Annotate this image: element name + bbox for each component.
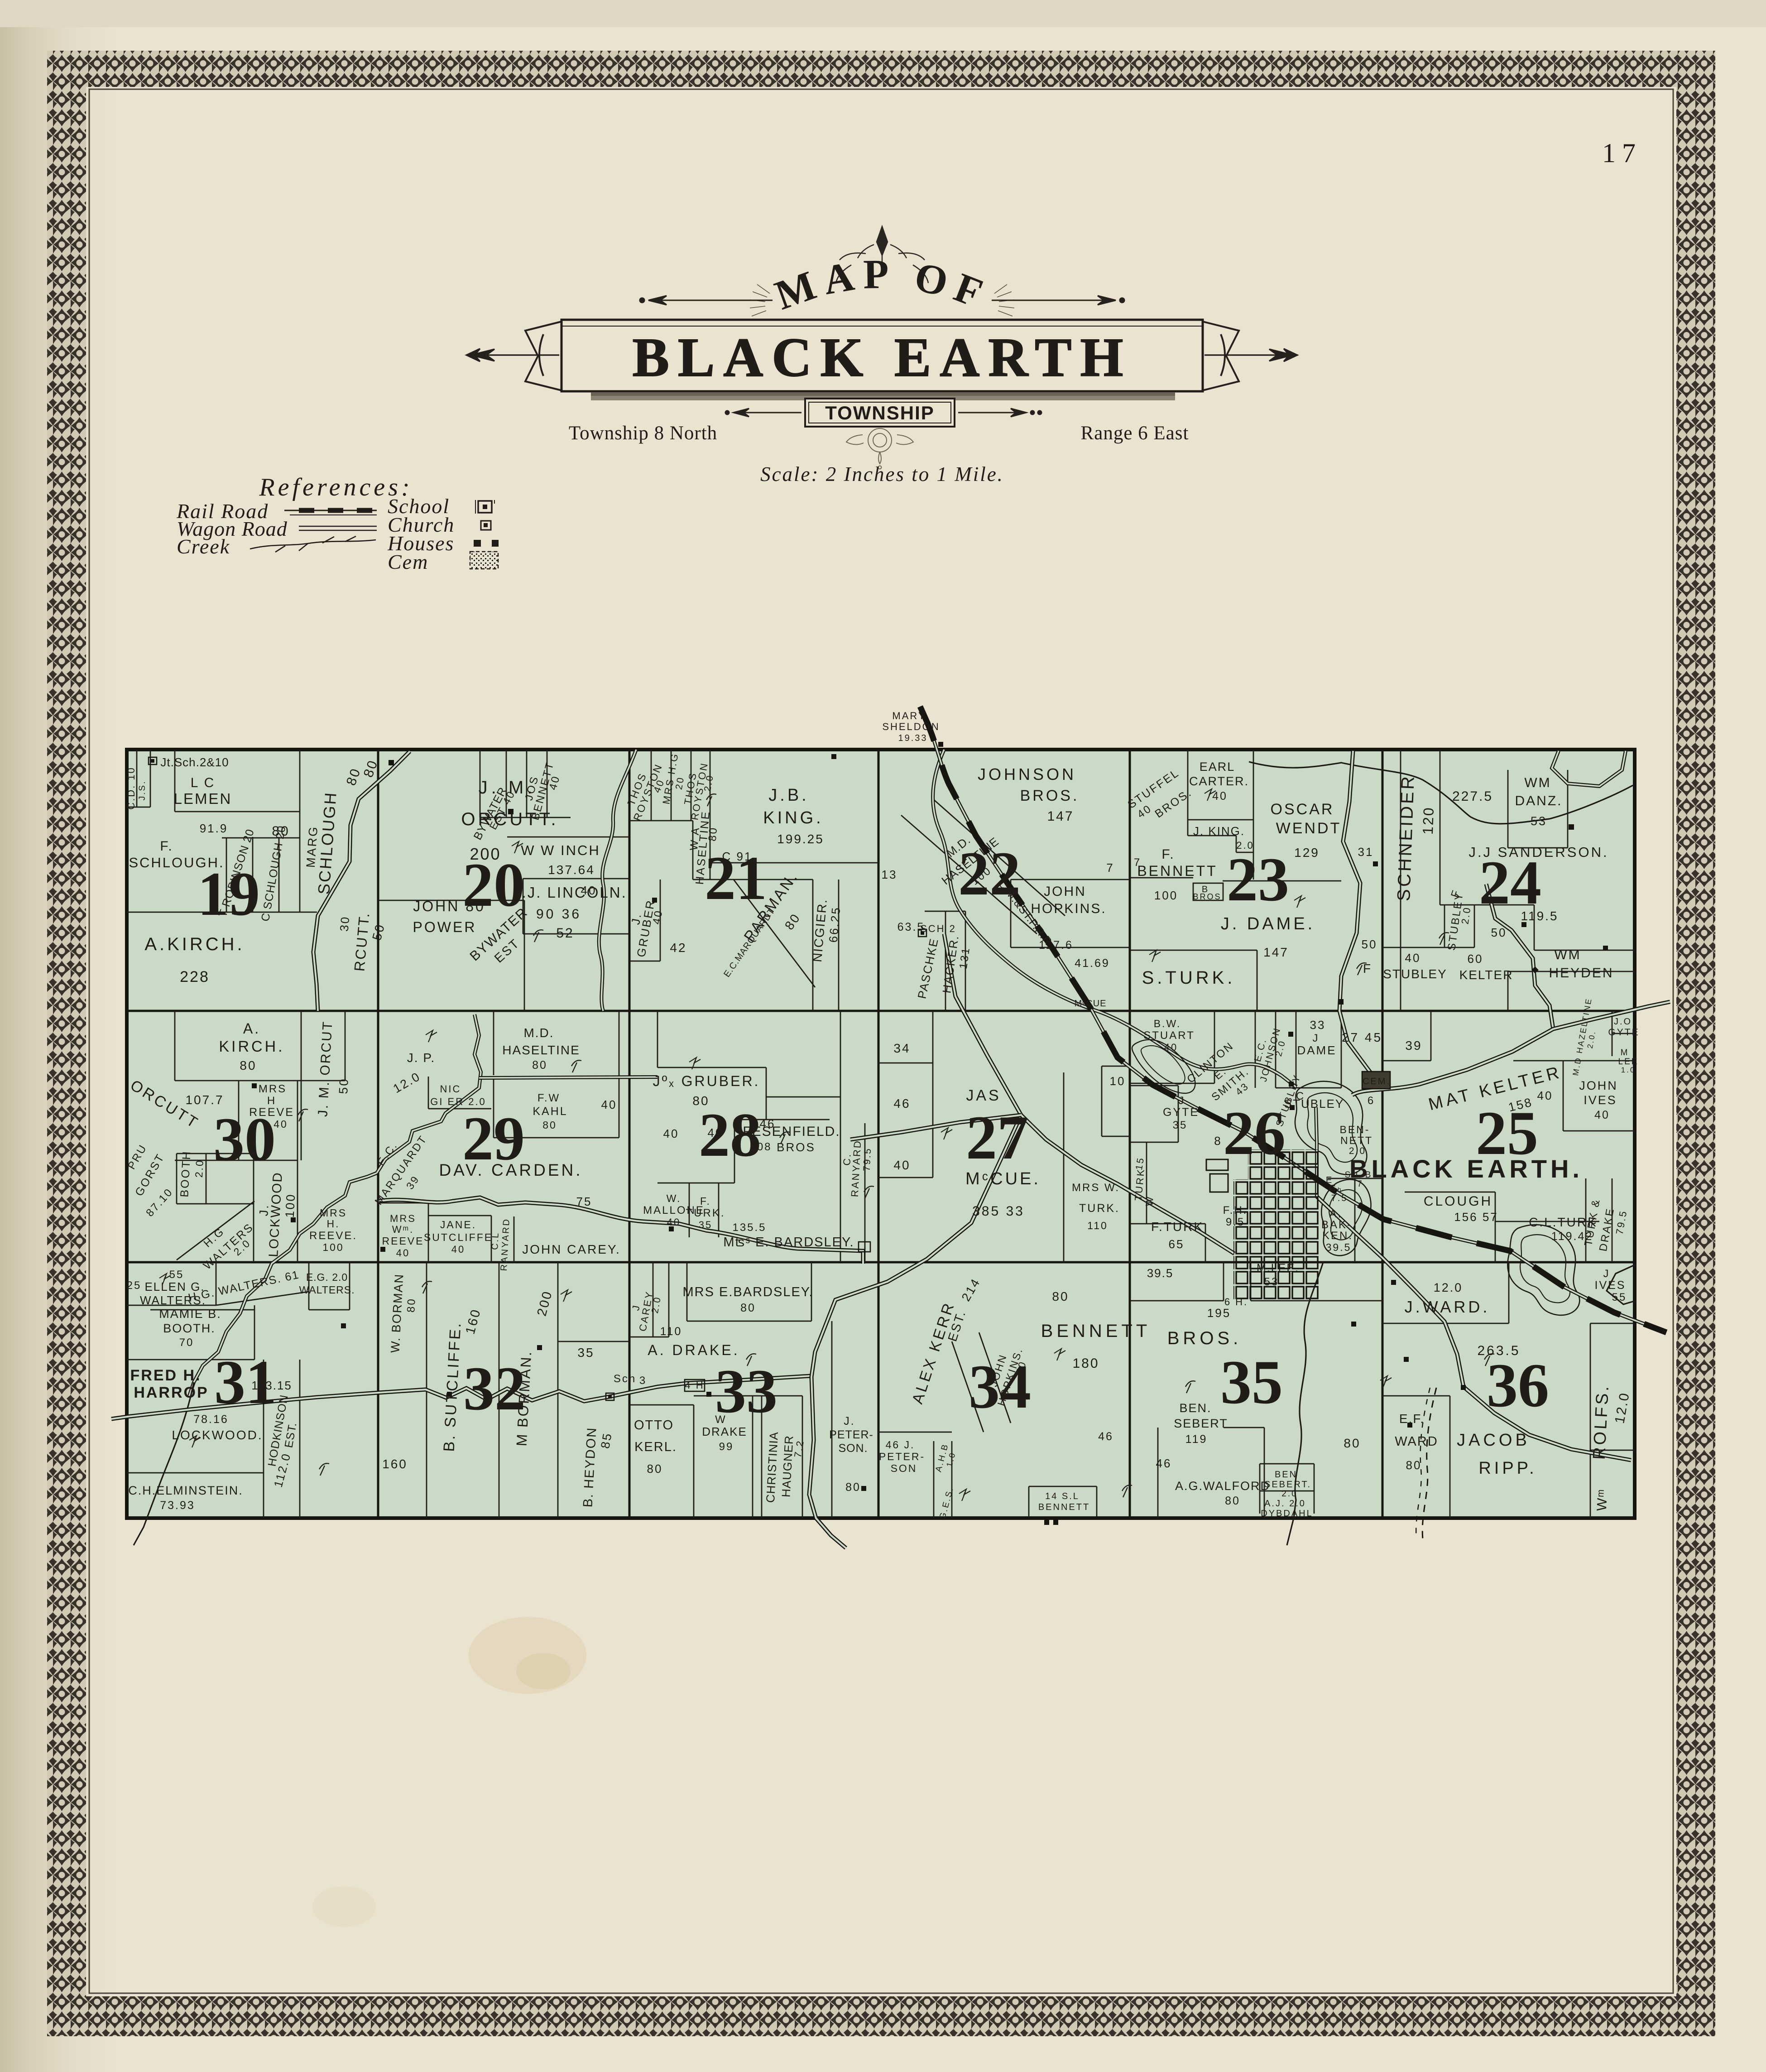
svg-text:35: 35 xyxy=(1220,1347,1283,1417)
svg-text:6 H.: 6 H. xyxy=(1224,1296,1248,1308)
svg-text:SON: SON xyxy=(891,1462,917,1474)
svg-text:40: 40 xyxy=(1594,1109,1610,1121)
svg-text:80: 80 xyxy=(1052,1289,1069,1303)
svg-text:60: 60 xyxy=(1468,952,1483,966)
svg-text:FESENFIELD.: FESENFIELD. xyxy=(743,1124,840,1139)
svg-text:BROS.: BROS. xyxy=(1020,787,1080,804)
svg-text:12.0: 12.0 xyxy=(1434,1281,1463,1294)
svg-text:2.0: 2.0 xyxy=(1281,1489,1297,1499)
svg-text:F.TURK: F.TURK xyxy=(1151,1220,1204,1234)
svg-text:2.0: 2.0 xyxy=(193,1159,206,1178)
svg-text:7: 7 xyxy=(1134,856,1141,869)
svg-text:POWER: POWER xyxy=(413,919,477,935)
svg-text:227.5: 227.5 xyxy=(1452,789,1493,804)
svg-text:SHELDON: SHELDON xyxy=(882,721,940,732)
svg-text:J.WARD.: J.WARD. xyxy=(1405,1298,1490,1316)
svg-text:40: 40 xyxy=(1212,790,1228,803)
svg-text:156 57: 156 57 xyxy=(1454,1210,1498,1224)
svg-text:195: 195 xyxy=(1207,1306,1231,1320)
svg-text:80: 80 xyxy=(740,1302,756,1314)
svg-text:25: 25 xyxy=(127,1279,142,1292)
svg-text:14 S.L: 14 S.L xyxy=(1045,1491,1080,1501)
svg-text:147: 147 xyxy=(1047,809,1074,824)
svg-text:BROS: BROS xyxy=(777,1140,816,1154)
svg-text:J.O: J.O xyxy=(1614,1017,1632,1027)
svg-text:53: 53 xyxy=(1531,814,1547,828)
svg-text:78.16: 78.16 xyxy=(193,1413,229,1426)
svg-text:50: 50 xyxy=(336,1077,351,1095)
svg-text:19.33: 19.33 xyxy=(898,733,927,743)
svg-text:F.H.: F.H. xyxy=(1223,1204,1248,1216)
svg-text:2.0: 2.0 xyxy=(1236,840,1254,851)
svg-text:REEVE.: REEVE. xyxy=(309,1230,357,1242)
svg-text:MARY: MARY xyxy=(892,710,926,721)
svg-text:H: H xyxy=(267,1095,276,1107)
svg-text:BEN.: BEN. xyxy=(1179,1401,1211,1415)
svg-text:6: 6 xyxy=(1368,1095,1375,1107)
svg-text:DAV. CARDEN.: DAV. CARDEN. xyxy=(439,1161,582,1179)
svg-text:J: J xyxy=(1603,1268,1610,1280)
svg-text:A.G.WALFORD: A.G.WALFORD xyxy=(1175,1479,1270,1493)
svg-text:85: 85 xyxy=(598,1431,614,1450)
svg-text:40: 40 xyxy=(893,1158,910,1172)
svg-text:40: 40 xyxy=(274,1118,288,1130)
svg-text:8: 8 xyxy=(1214,1134,1222,1148)
svg-text:Gₕ: Gₕ xyxy=(1329,1183,1343,1193)
svg-text:CEM.: CEM. xyxy=(1363,1077,1391,1086)
svg-text:137.64: 137.64 xyxy=(548,863,595,877)
svg-text:J: J xyxy=(1179,1095,1185,1107)
svg-text:JACOB: JACOB xyxy=(1457,1431,1530,1450)
svg-text:WALTERS.: WALTERS. xyxy=(299,1284,355,1296)
svg-text:90 36: 90 36 xyxy=(536,907,581,922)
svg-text:MRS E.BARDSLEY.: MRS E.BARDSLEY. xyxy=(683,1285,814,1299)
svg-text:80: 80 xyxy=(532,1059,547,1072)
svg-text:23: 23 xyxy=(1227,845,1289,914)
svg-text:120: 120 xyxy=(1420,806,1437,835)
svg-text:REEVE: REEVE xyxy=(382,1235,424,1247)
svg-text:110: 110 xyxy=(1087,1220,1108,1231)
svg-text:Mʦˢ E. BARDSLEY.: Mʦˢ E. BARDSLEY. xyxy=(723,1235,854,1250)
svg-text:33: 33 xyxy=(1310,1018,1326,1032)
svg-text:80: 80 xyxy=(1225,1495,1240,1507)
svg-text:Sch: Sch xyxy=(614,1373,636,1385)
svg-text:NIC: NIC xyxy=(440,1083,461,1095)
svg-text:MRS: MRS xyxy=(259,1083,287,1095)
svg-text:40: 40 xyxy=(667,1216,681,1228)
svg-text:STUBLEY: STUBLEY xyxy=(1284,1097,1344,1111)
svg-text:OTTO: OTTO xyxy=(634,1418,674,1433)
svg-text:BAK-: BAK- xyxy=(1321,1219,1352,1231)
svg-text:228: 228 xyxy=(180,968,210,986)
svg-text:JAS: JAS xyxy=(966,1087,1001,1104)
svg-text:LEE: LEE xyxy=(1618,1057,1639,1067)
svg-text:EARL: EARL xyxy=(1200,760,1235,774)
svg-text:Jt.Sch.2&10: Jt.Sch.2&10 xyxy=(160,755,229,769)
svg-text:A.KIRCH.: A.KIRCH. xyxy=(144,934,245,954)
svg-text:J.: J. xyxy=(844,1415,855,1428)
svg-text:30: 30 xyxy=(337,915,352,932)
svg-text:108: 108 xyxy=(749,1141,772,1153)
svg-text:SUTCLIFFE: SUTCLIFFE xyxy=(424,1231,493,1243)
svg-text:FRED H.: FRED H. xyxy=(130,1367,202,1384)
svg-text:GYTE: GYTE xyxy=(1608,1027,1639,1038)
svg-text:263.5: 263.5 xyxy=(1477,1343,1520,1358)
svg-text:Creek: Creek xyxy=(177,535,230,558)
svg-text:W W INCH: W W INCH xyxy=(521,842,600,858)
svg-text:PETER-: PETER- xyxy=(829,1428,873,1441)
svg-text:46: 46 xyxy=(893,1096,910,1111)
svg-text:ORCUTT.: ORCUTT. xyxy=(461,809,558,829)
svg-text:80: 80 xyxy=(240,1058,256,1072)
svg-text:IVES: IVES xyxy=(1595,1279,1626,1292)
svg-text:Township 8 North: Township 8 North xyxy=(569,423,717,444)
svg-text:HASELTINE: HASELTINE xyxy=(502,1043,580,1057)
svg-text:80: 80 xyxy=(647,1462,663,1476)
svg-text:REEVE: REEVE xyxy=(249,1106,294,1119)
svg-text:E.G. 2.0: E.G. 2.0 xyxy=(306,1271,348,1283)
svg-text:WARD: WARD xyxy=(1395,1434,1438,1449)
svg-text:WENDT: WENDT xyxy=(1276,820,1342,837)
svg-text:200: 200 xyxy=(470,845,501,863)
svg-text:Jºₓ GRUBER.: Jºₓ GRUBER. xyxy=(653,1073,760,1089)
svg-text:10: 10 xyxy=(1110,1074,1126,1088)
svg-text:SEBERT: SEBERT xyxy=(1174,1417,1228,1430)
svg-text:80: 80 xyxy=(845,1481,861,1494)
svg-text:J. KING.: J. KING. xyxy=(1193,824,1245,838)
svg-text:F.: F. xyxy=(160,839,173,854)
svg-text:LEMEN: LEMEN xyxy=(174,790,232,807)
svg-text:KELTER: KELTER xyxy=(1459,968,1513,982)
svg-text:3: 3 xyxy=(639,1375,647,1387)
svg-text:27: 27 xyxy=(966,1103,1028,1172)
svg-text:80: 80 xyxy=(542,1119,557,1131)
svg-text:119.5: 119.5 xyxy=(1521,909,1559,923)
svg-text:7: 7 xyxy=(1106,861,1114,875)
svg-text:LOCKWOOD.: LOCKWOOD. xyxy=(172,1428,263,1442)
svg-text:129: 129 xyxy=(1294,846,1320,860)
svg-text:46 J.: 46 J. xyxy=(886,1439,915,1451)
svg-text:147: 147 xyxy=(1263,945,1289,959)
svg-text:7.5: 7.5 xyxy=(1331,1193,1348,1203)
svg-text:ROLFS.: ROLFS. xyxy=(1590,1384,1613,1460)
svg-text:NETT: NETT xyxy=(1340,1135,1373,1146)
svg-text:JOHN: JOHN xyxy=(1579,1079,1618,1092)
svg-text:40: 40 xyxy=(663,1127,679,1140)
svg-text:WM: WM xyxy=(1524,775,1551,790)
svg-text:Wᵐ: Wᵐ xyxy=(1594,1488,1611,1511)
svg-text:F: F xyxy=(1363,961,1372,976)
svg-text:40: 40 xyxy=(396,1247,410,1259)
svg-text:17: 17 xyxy=(1602,138,1642,168)
svg-text:MᶜCUE.: MᶜCUE. xyxy=(965,1169,1041,1188)
svg-text:40: 40 xyxy=(1537,1089,1553,1102)
svg-text:S.TURK.: S.TURK. xyxy=(1142,968,1236,988)
svg-text:E.F.: E.F. xyxy=(1399,1412,1425,1426)
svg-text:199.25: 199.25 xyxy=(777,832,824,846)
svg-text:40: 40 xyxy=(451,1244,465,1255)
svg-text:40: 40 xyxy=(708,1126,724,1139)
svg-text:40: 40 xyxy=(601,1098,617,1111)
svg-text:WM: WM xyxy=(1554,947,1581,962)
svg-text:39.5: 39.5 xyxy=(1326,1241,1352,1253)
svg-text:BROS.: BROS. xyxy=(1167,1328,1242,1348)
svg-text:JOHN CAREY.: JOHN CAREY. xyxy=(522,1242,621,1256)
svg-text:J.B.: J.B. xyxy=(768,786,809,805)
svg-text:75: 75 xyxy=(576,1195,592,1208)
svg-text:113.15: 113.15 xyxy=(251,1379,292,1392)
svg-text:CLOUGH: CLOUGH xyxy=(1424,1194,1492,1209)
svg-text:Scale: 2 Inches to 1 Mile.: Scale: 2 Inches to 1 Mile. xyxy=(760,463,1004,486)
svg-text:91.9: 91.9 xyxy=(200,822,228,835)
svg-text:BLACK EARTH.: BLACK EARTH. xyxy=(1349,1154,1583,1183)
svg-text:40: 40 xyxy=(650,909,665,925)
svg-text:J.J SANDERSON.: J.J SANDERSON. xyxy=(1468,844,1608,860)
svg-text:HARROP: HARROP xyxy=(134,1384,208,1401)
svg-text:13: 13 xyxy=(882,868,897,881)
svg-text:KIRCH.: KIRCH. xyxy=(219,1038,284,1055)
svg-text:MRS W.: MRS W. xyxy=(1072,1182,1120,1194)
svg-text:160: 160 xyxy=(382,1457,408,1471)
svg-text:SON.: SON. xyxy=(838,1442,868,1455)
svg-text:99: 99 xyxy=(719,1441,734,1453)
svg-text:135.5: 135.5 xyxy=(732,1221,766,1234)
svg-text:JOHN: JOHN xyxy=(1044,884,1086,899)
svg-text:TOWNSHIP: TOWNSHIP xyxy=(825,402,935,423)
svg-text:H.: H. xyxy=(327,1218,340,1230)
svg-text:DYBDAHL: DYBDAHL xyxy=(1261,1509,1313,1519)
svg-text:J: J xyxy=(1313,1032,1320,1044)
svg-text:A. DRAKE.: A. DRAKE. xyxy=(648,1342,739,1358)
svg-text:KEN.: KEN. xyxy=(1322,1230,1353,1242)
svg-text:26: 26 xyxy=(1223,1098,1286,1168)
svg-text:GYTE: GYTE xyxy=(1163,1106,1199,1119)
svg-text:DANZ.: DANZ. xyxy=(1515,793,1563,808)
svg-text:53: 53 xyxy=(1264,1276,1279,1288)
svg-text:M.D.: M.D. xyxy=(523,1026,554,1040)
svg-text:BROS: BROS xyxy=(1193,892,1221,901)
svg-text:50: 50 xyxy=(1491,926,1507,939)
svg-text:F.W: F.W xyxy=(537,1092,560,1104)
svg-text:JOHNSON: JOHNSON xyxy=(978,765,1076,784)
svg-text:STUBLEY: STUBLEY xyxy=(1383,967,1447,981)
svg-text:BENNETT: BENNETT xyxy=(1137,863,1217,879)
svg-text:100: 100 xyxy=(322,1241,344,1253)
svg-text:KING.: KING. xyxy=(763,808,823,827)
svg-text:OSCAR: OSCAR xyxy=(1271,801,1334,818)
svg-text:40: 40 xyxy=(581,884,597,897)
svg-text:IVES: IVES xyxy=(1584,1093,1617,1107)
svg-text:80: 80 xyxy=(1344,1436,1360,1450)
svg-text:M: M xyxy=(1621,1048,1629,1058)
svg-text:9.5: 9.5 xyxy=(1226,1216,1245,1228)
svg-text:HOPKINS.: HOPKINS. xyxy=(1031,901,1106,916)
svg-text:SCHLOUGH.: SCHLOUGH. xyxy=(129,855,224,870)
svg-text:F.: F. xyxy=(700,1195,711,1207)
svg-text:C.L: C.L xyxy=(490,1231,501,1250)
svg-text:L C: L C xyxy=(191,775,216,790)
svg-text:TURK.: TURK. xyxy=(1079,1202,1120,1215)
svg-text:TURK.: TURK. xyxy=(686,1207,725,1219)
svg-text:BOOTH.: BOOTH. xyxy=(163,1322,216,1335)
svg-text:180: 180 xyxy=(1072,1356,1099,1371)
svg-text:L.J. LINCOLN.: L.J. LINCOLN. xyxy=(512,884,627,901)
svg-text:B.W.: B.W. xyxy=(1154,1018,1181,1029)
svg-text:119: 119 xyxy=(1185,1433,1208,1446)
svg-text:65: 65 xyxy=(1169,1237,1185,1251)
svg-text:55: 55 xyxy=(1612,1291,1627,1303)
svg-text:KAHL: KAHL xyxy=(533,1105,567,1118)
svg-text:52: 52 xyxy=(556,926,574,941)
svg-text:BEN: BEN xyxy=(1275,1470,1297,1480)
svg-text:BLACK EARTH: BLACK EARTH xyxy=(633,327,1132,388)
svg-text:35: 35 xyxy=(577,1346,594,1360)
svg-text:34: 34 xyxy=(893,1041,910,1055)
svg-text:Wᵐ.: Wᵐ. xyxy=(392,1224,414,1235)
svg-text:W: W xyxy=(715,1413,727,1426)
svg-text:42: 42 xyxy=(670,941,686,955)
svg-text:385 33: 385 33 xyxy=(972,1204,1025,1219)
svg-text:RIPP.: RIPP. xyxy=(1478,1459,1537,1478)
svg-text:BENNETT: BENNETT xyxy=(1041,1321,1151,1341)
svg-text:MRS: MRS xyxy=(390,1213,416,1224)
svg-text:4 H: 4 H xyxy=(685,1380,704,1391)
svg-text:36: 36 xyxy=(1487,1351,1549,1420)
svg-text:DRAKE: DRAKE xyxy=(702,1425,747,1438)
svg-text:JOHN 80: JOHN 80 xyxy=(413,898,485,914)
svg-text:80: 80 xyxy=(405,1298,418,1313)
svg-text:C.D. 10: C.D. 10 xyxy=(125,766,137,810)
svg-text:HEYDEN: HEYDEN xyxy=(1549,966,1613,981)
svg-text:GI ER 2.0: GI ER 2.0 xyxy=(430,1096,486,1107)
svg-text:1.0: 1.0 xyxy=(1621,1066,1636,1074)
svg-text:46: 46 xyxy=(1098,1430,1113,1443)
svg-text:100: 100 xyxy=(283,1193,298,1218)
svg-text:39.5: 39.5 xyxy=(1147,1266,1174,1280)
svg-text:80: 80 xyxy=(1406,1458,1422,1472)
svg-text:A.J. 2.0: A.J. 2.0 xyxy=(1264,1499,1306,1509)
svg-text:F.: F. xyxy=(1161,847,1175,862)
svg-text:79.5: 79.5 xyxy=(862,1147,873,1172)
svg-text:DAME: DAME xyxy=(1297,1043,1336,1057)
svg-text:80: 80 xyxy=(692,1094,709,1108)
svg-text:40: 40 xyxy=(1164,1042,1178,1053)
svg-text:MRS: MRS xyxy=(320,1207,347,1219)
svg-text:BENNETT: BENNETT xyxy=(1038,1502,1090,1512)
svg-text:50: 50 xyxy=(1362,937,1377,951)
svg-text:JANE.: JANE. xyxy=(440,1219,476,1231)
svg-text:SCH 2: SCH 2 xyxy=(920,923,956,934)
svg-text:A.: A. xyxy=(243,1020,260,1037)
svg-text:117.6: 117.6 xyxy=(1039,939,1073,952)
svg-text:KERL.: KERL. xyxy=(634,1440,677,1454)
svg-text:A.: A. xyxy=(1329,1208,1343,1220)
svg-text:40: 40 xyxy=(1405,951,1421,965)
svg-text:73.93: 73.93 xyxy=(160,1499,195,1512)
svg-text:107.7: 107.7 xyxy=(185,1093,224,1107)
svg-text:Cem: Cem xyxy=(388,550,428,573)
svg-text:46: 46 xyxy=(760,1117,776,1130)
svg-text:100: 100 xyxy=(1154,889,1178,902)
svg-text:SEBERT.: SEBERT. xyxy=(1264,1480,1311,1490)
svg-text:46: 46 xyxy=(1156,1457,1172,1470)
svg-text:41.69: 41.69 xyxy=(1075,957,1110,970)
svg-text:31: 31 xyxy=(1358,845,1374,859)
svg-text:J. P.: J. P. xyxy=(407,1051,435,1065)
svg-text:39: 39 xyxy=(1405,1038,1422,1053)
svg-text:CARTER.: CARTER. xyxy=(1189,774,1249,788)
svg-text:27 45: 27 45 xyxy=(1342,1030,1382,1044)
svg-text:W.: W. xyxy=(667,1192,681,1204)
svg-text:PETER-: PETER- xyxy=(879,1451,925,1462)
svg-text:35: 35 xyxy=(1173,1119,1188,1131)
svg-text:STUART: STUART xyxy=(1143,1029,1195,1042)
svg-text:J. DAME.: J. DAME. xyxy=(1221,914,1315,933)
svg-text:70: 70 xyxy=(179,1336,194,1349)
svg-text:110: 110 xyxy=(660,1325,682,1338)
svg-text:J.S.: J.S. xyxy=(138,780,147,801)
svg-text:80: 80 xyxy=(706,826,720,842)
svg-text:C.H.ELMINSTEIN.: C.H.ELMINSTEIN. xyxy=(128,1484,243,1497)
svg-text:M.LEE.: M.LEE. xyxy=(1257,1262,1299,1274)
svg-text:MAMIE B.: MAMIE B. xyxy=(159,1307,221,1321)
svg-text:W: W xyxy=(1143,1195,1156,1207)
svg-text:C 91: C 91 xyxy=(722,850,753,863)
svg-text:Range 6 East: Range 6 East xyxy=(1081,423,1189,444)
svg-text:BOOTH: BOOTH xyxy=(178,1150,193,1197)
svg-text:BEN-: BEN- xyxy=(1340,1124,1370,1135)
svg-text:55: 55 xyxy=(169,1269,184,1281)
svg-text:35: 35 xyxy=(699,1219,712,1231)
svg-text:MᶜCUE: MᶜCUE xyxy=(1075,999,1107,1009)
